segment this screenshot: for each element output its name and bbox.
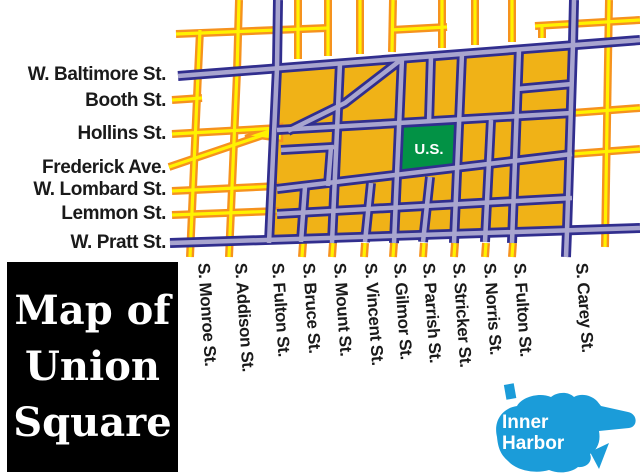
street-label-booth-st: Booth St.: [0, 90, 166, 112]
inner-harbor-label-line-1: Inner: [502, 412, 564, 433]
street-label-frederick-ave: Frederick Ave.: [0, 157, 166, 179]
street-label-hollins-st: Hollins St.: [0, 123, 166, 145]
union-square-map-image: U.S. W. Baltimore St.Booth St.Hollins St…: [0, 0, 640, 474]
union-square-label: U.S.: [414, 141, 443, 158]
street-label-w-pratt-st: W. Pratt St.: [0, 232, 166, 254]
map-title-box: Map of Union Square: [7, 262, 178, 472]
street-label-w-lombard-st: W. Lombard St.: [0, 179, 166, 201]
inner-harbor-label-line-2: Harbor: [502, 433, 564, 454]
map-title-line-2: Union: [25, 339, 160, 395]
street-label-w-baltimore-st: W. Baltimore St.: [0, 64, 166, 86]
street-label-lemmon-st: Lemmon St.: [0, 203, 166, 225]
map-title-line-1: Map of: [15, 283, 171, 339]
map-title-line-3: Square: [13, 395, 171, 451]
inner-harbor-label: Inner Harbor: [502, 412, 564, 454]
